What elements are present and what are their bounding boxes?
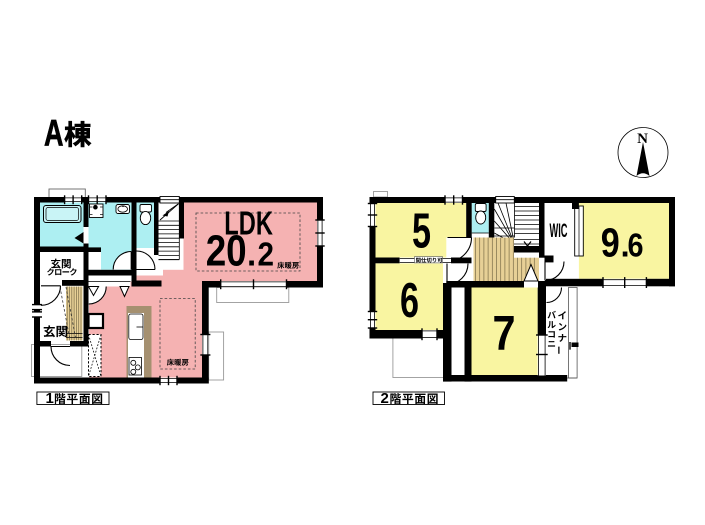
svg-text:7: 7	[493, 307, 516, 361]
svg-text:1: 1	[46, 390, 54, 407]
svg-text:2: 2	[258, 237, 275, 274]
svg-text:5: 5	[412, 204, 431, 258]
svg-text:9: 9	[601, 220, 620, 266]
svg-text:A: A	[44, 113, 64, 154]
svg-text:WIC: WIC	[550, 221, 568, 242]
svg-text:6: 6	[400, 274, 419, 328]
svg-text:2: 2	[381, 390, 389, 407]
svg-text:.: .	[247, 236, 256, 273]
svg-text:6: 6	[628, 227, 644, 264]
svg-text:20: 20	[206, 228, 247, 276]
